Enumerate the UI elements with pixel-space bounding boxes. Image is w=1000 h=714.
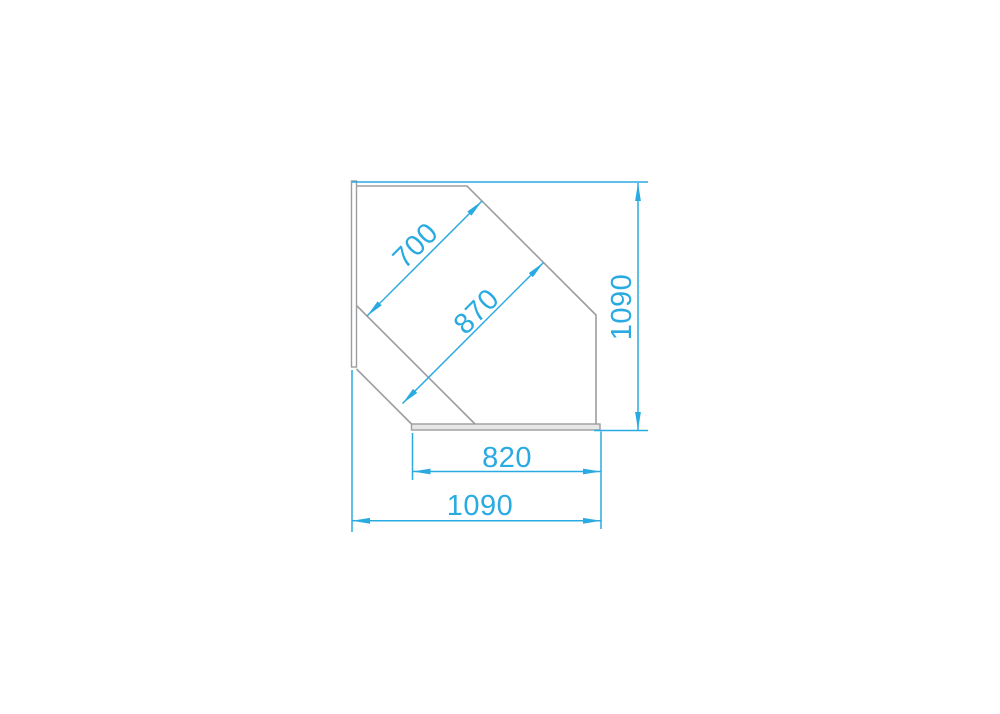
dim-label-700: 700 xyxy=(387,217,445,275)
dim-label-1090-right: 1090 xyxy=(606,274,638,341)
lower-panel-edge xyxy=(357,369,412,424)
dimension-group: 700 870 1090 820 xyxy=(352,182,648,532)
dim-label-870: 870 xyxy=(448,283,506,341)
dim-glass-lower: 870 xyxy=(403,263,544,404)
dim-base-width: 820 xyxy=(413,433,602,480)
drawing-canvas: 700 870 1090 820 xyxy=(0,0,1000,714)
technical-drawing: 700 870 1090 820 xyxy=(0,0,1000,714)
dim-overall-width: 1090 xyxy=(352,370,601,532)
dim-glass-upper: 700 xyxy=(367,201,482,316)
dim-label-1090-bottom: 1090 xyxy=(447,490,514,522)
dim-label-820: 820 xyxy=(482,442,532,474)
base-bar xyxy=(412,424,601,430)
back-panel xyxy=(352,181,357,367)
